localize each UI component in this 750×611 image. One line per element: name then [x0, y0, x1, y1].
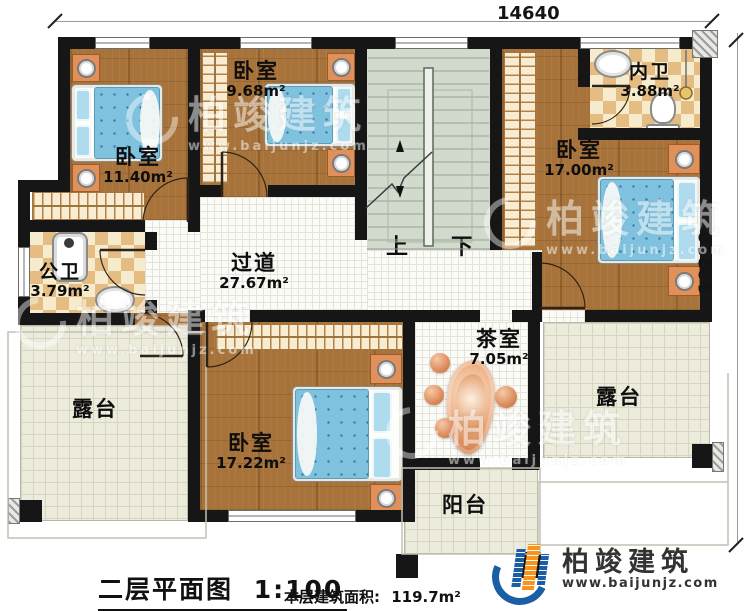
wall	[18, 313, 135, 325]
wall	[415, 310, 480, 322]
tea-stool	[435, 418, 455, 438]
label-terrace-right: 露台	[574, 386, 664, 409]
dimension-top-value: 14640	[497, 3, 560, 24]
floor-stairwell	[367, 49, 490, 250]
tea-table-inner	[452, 373, 488, 438]
pillow	[677, 181, 697, 219]
wall	[512, 458, 540, 470]
wall	[200, 185, 222, 197]
hatch-block	[692, 30, 718, 58]
pillow	[336, 117, 352, 143]
window	[240, 37, 312, 49]
nightstand	[327, 53, 355, 81]
wall	[145, 300, 157, 313]
lamp-icon	[377, 489, 396, 508]
nightstand	[327, 149, 355, 177]
lamp-icon	[675, 272, 694, 291]
wall	[578, 49, 590, 87]
floor-area-value: 119.7m²	[391, 588, 461, 606]
wall	[58, 37, 70, 192]
blanket-fold	[602, 182, 622, 258]
wardrobe	[32, 192, 145, 220]
lamp-icon	[377, 360, 396, 379]
plan-title-text: 二层平面图	[98, 575, 233, 604]
wall	[403, 458, 480, 470]
pillow	[677, 223, 697, 261]
brand-name: 柏竣建筑	[562, 549, 719, 577]
dimension-right-value: 10210	[696, 221, 717, 305]
wall	[512, 310, 542, 322]
nightstand	[668, 144, 700, 174]
label-tea-room: 茶室 7.05m²	[444, 328, 554, 368]
floor-area-note: 本层建筑面积: 119.7m²	[284, 586, 461, 607]
tea-stool	[424, 385, 444, 405]
label-bedroom-bottom: 卧室 17.22m²	[201, 432, 301, 472]
lamp-icon	[332, 58, 351, 77]
brand-footer: 柏竣建筑 www.baijunjz.com	[492, 541, 719, 599]
window	[228, 510, 356, 522]
label-public-bathroom: 公卫 3.79m²	[18, 262, 102, 299]
floor-area-label: 本层建筑面积:	[284, 588, 380, 606]
wall	[403, 310, 415, 522]
wall	[532, 252, 542, 310]
pillow	[372, 437, 392, 479]
label-bedroom-right: 卧室 17.00m²	[524, 139, 634, 179]
label-terrace-left: 露台	[50, 398, 140, 421]
pillow	[336, 87, 352, 113]
label-ensuite-bathroom: 内卫 3.88m²	[604, 62, 696, 99]
pillar	[20, 500, 42, 522]
wall	[490, 49, 502, 250]
lamp-icon	[675, 150, 694, 169]
hatch-block	[8, 498, 20, 524]
wall	[268, 185, 367, 197]
pillar	[396, 554, 418, 578]
window	[395, 37, 468, 49]
nightstand	[370, 354, 402, 384]
bathtub-drain-icon	[64, 238, 74, 248]
floor-terrace-left	[20, 325, 188, 521]
label-balcony: 阳台	[420, 494, 510, 517]
tea-stool	[495, 386, 517, 408]
floor-plan-canvas: 14640 10210	[0, 0, 750, 611]
wardrobe	[215, 324, 403, 350]
brand-url: www.baijunjz.com	[562, 577, 719, 591]
dimension-line-top	[55, 21, 712, 22]
nightstand	[72, 54, 100, 82]
pillar	[692, 444, 714, 468]
wall	[145, 232, 157, 250]
label-hallway: 过道 27.67m²	[194, 252, 314, 292]
wall	[188, 37, 200, 232]
wall	[30, 220, 145, 232]
wall	[356, 510, 415, 522]
wall	[355, 49, 367, 240]
wall	[188, 510, 228, 522]
pillow	[75, 125, 91, 157]
label-stairs-down: 下	[448, 236, 476, 260]
pillow	[372, 391, 392, 433]
label-bedroom-top-left: 卧室 11.40m²	[93, 146, 183, 186]
lamp-icon	[77, 59, 96, 78]
window	[95, 37, 150, 49]
nightstand	[370, 484, 402, 512]
wall	[585, 310, 712, 322]
window	[580, 37, 680, 49]
brand-logo-icon	[492, 541, 554, 599]
label-stairs-up: 上	[383, 236, 411, 260]
floor-hallway	[542, 310, 585, 322]
label-bedroom-top-mid: 卧室 9.68m²	[210, 60, 302, 100]
lamp-icon	[332, 154, 351, 173]
pillow	[75, 89, 91, 121]
wall	[250, 310, 403, 322]
dimension-line-right	[737, 33, 738, 545]
hatch-block	[712, 442, 724, 472]
wall	[188, 310, 200, 522]
